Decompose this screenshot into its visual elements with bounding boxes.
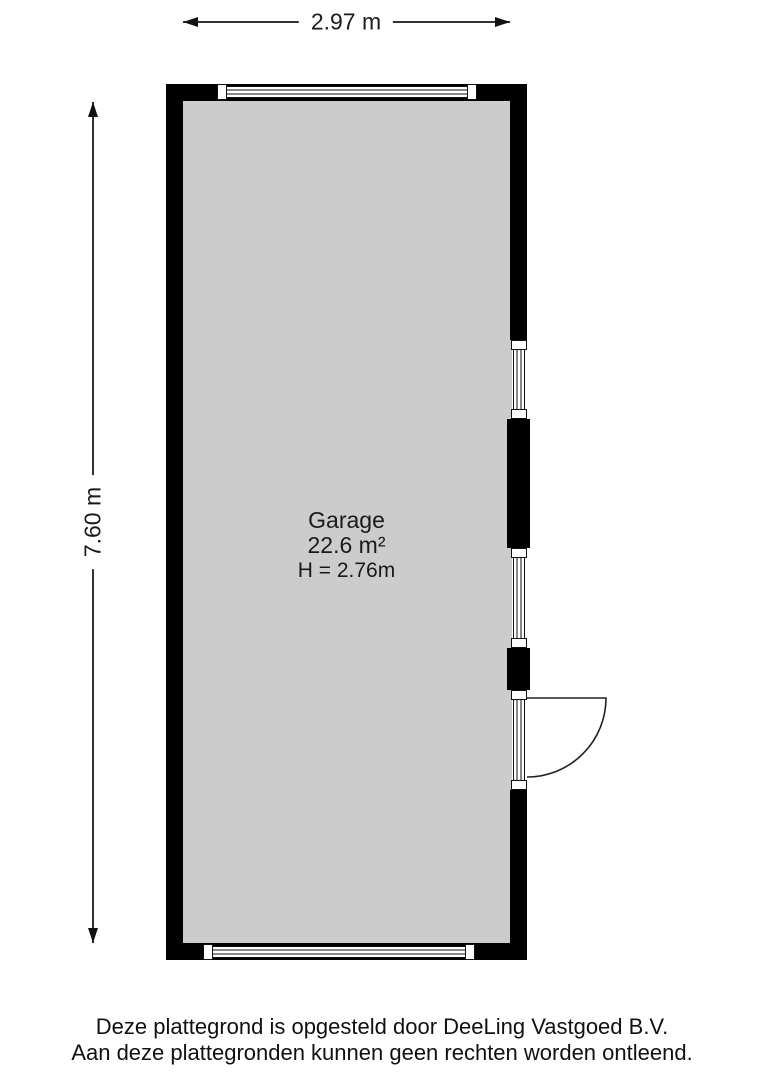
footer-line-2: Aan deze plattegronden kunnen geen recht… [0,1040,764,1066]
window-frame-cap [511,638,527,648]
footer-disclaimer: Deze plattegrond is opgesteld door DeeLi… [0,1014,764,1066]
window-frame-cap [511,409,527,419]
window-glass [517,558,522,638]
door-opening [513,690,525,790]
footer-line-1: Deze plattegrond is opgesteld door DeeLi… [0,1014,764,1040]
wall-left [166,84,183,960]
arrow-up-icon [88,102,98,117]
room-name: Garage [183,507,510,533]
window-top-wall [217,86,477,98]
window-glass [213,950,465,955]
wall-right-upper [510,84,527,340]
height-dimension-label: 7.60 m [80,475,107,569]
floorplan: Garage 22.6 m² H = 2.76m [166,84,527,960]
window-right-wall-1 [513,340,525,419]
room-label: Garage 22.6 m² H = 2.76m [183,507,510,583]
window-frame-cap [217,84,227,100]
window-frame-cap [511,340,527,350]
arrow-right-icon [495,17,510,27]
window-bottom-wall [203,946,475,958]
wall-right-pier-1 [507,419,530,548]
wall-right-lower [510,790,527,960]
room-ceiling-height: H = 2.76m [183,558,510,583]
arrow-down-icon [88,928,98,943]
door-frame-cap [511,780,527,790]
width-dimension-label: 2.97 m [299,9,393,36]
window-frame-cap [465,944,475,960]
window-frame-cap [467,84,477,100]
window-glass [517,350,522,409]
door-frame-cap [511,690,527,700]
window-right-wall-2 [513,548,525,648]
door-swing-arc [526,696,610,782]
room-area: 22.6 m² [183,533,510,558]
window-frame-cap [511,548,527,558]
window-frame-cap [203,944,213,960]
window-glass [227,90,467,95]
door-frame [517,700,522,780]
wall-right-pier-2 [507,648,530,690]
arrow-left-icon [183,17,198,27]
